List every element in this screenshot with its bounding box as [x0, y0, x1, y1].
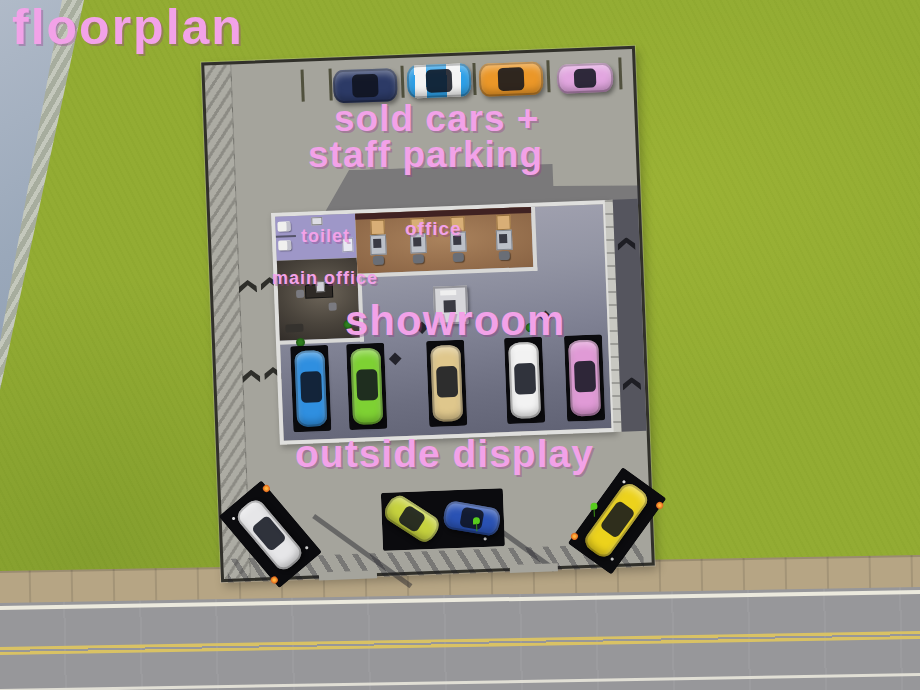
up-chevron-icon — [617, 237, 635, 251]
computer — [413, 237, 421, 246]
car-pink-coupe[interactable] — [568, 339, 601, 416]
parking-line — [301, 70, 305, 102]
display-pad — [564, 334, 605, 421]
car-lime-coupe[interactable] — [381, 492, 443, 546]
office-chair — [413, 254, 424, 263]
car-cabin — [599, 500, 635, 539]
car-cabin — [459, 507, 484, 530]
main-office-room — [277, 258, 364, 345]
display-pad — [290, 345, 331, 432]
sink[interactable] — [342, 238, 354, 252]
game-viewport: floorplan sold cars + staff parking toil… — [0, 0, 920, 690]
parking-line — [329, 69, 333, 101]
car-cabin — [250, 515, 287, 553]
route-marker-icon — [539, 311, 552, 324]
road — [0, 555, 920, 690]
cabinet — [370, 220, 385, 236]
potted-plant[interactable] — [525, 323, 534, 332]
car-cabin — [573, 360, 595, 393]
kiosk-counter — [440, 290, 456, 296]
dealership-building — [271, 200, 616, 445]
car-orange-sports[interactable] — [478, 61, 543, 96]
parking-line — [472, 63, 476, 95]
car-cabin — [426, 69, 452, 92]
car-tan-classic[interactable] — [430, 345, 463, 422]
display-pad — [504, 337, 545, 424]
computer[interactable] — [316, 281, 325, 292]
road-surface — [0, 587, 920, 690]
road-center-line — [0, 631, 920, 655]
cash-register-kiosk[interactable] — [433, 285, 468, 324]
office-chair[interactable] — [296, 290, 304, 298]
computer — [499, 234, 507, 243]
up-chevron-icon — [242, 369, 260, 383]
office-workstation[interactable] — [409, 218, 426, 265]
car-cabin — [498, 67, 524, 90]
car-cabin — [436, 365, 458, 398]
wall-dispenser — [311, 217, 322, 225]
cabinet — [450, 217, 465, 233]
car-white-roadster[interactable] — [508, 342, 541, 419]
cabinet — [410, 218, 425, 234]
sofa[interactable] — [285, 324, 303, 333]
office-chair — [499, 251, 510, 260]
car-green-sports[interactable] — [350, 348, 383, 425]
car-cabin — [397, 505, 426, 533]
car-cabin — [356, 369, 378, 402]
display-pad — [381, 488, 505, 551]
display-pad — [346, 343, 387, 430]
cabinet — [496, 215, 511, 231]
dealership-lot — [201, 46, 655, 582]
car-cabin — [352, 74, 378, 97]
parking-line — [618, 57, 622, 89]
toilet-fixture[interactable] — [277, 221, 290, 231]
office-workstation[interactable] — [369, 220, 386, 267]
route-marker-icon — [389, 352, 402, 365]
car-blue-coupe[interactable] — [442, 500, 502, 537]
parking-line — [400, 66, 404, 98]
office-workstation[interactable] — [495, 215, 512, 262]
computer — [373, 239, 381, 248]
up-chevron-icon — [623, 377, 641, 391]
office-room — [355, 207, 537, 278]
car-cabin — [513, 362, 535, 395]
stall-divider — [276, 235, 296, 238]
computer — [453, 236, 461, 245]
potted-plant[interactable] — [343, 320, 352, 329]
register-screen — [443, 300, 455, 312]
parking-line — [546, 60, 550, 92]
route-marker-icon — [416, 321, 429, 334]
office-chair[interactable] — [328, 303, 336, 311]
car-navy-coupe[interactable] — [333, 68, 398, 103]
car-cabin — [573, 68, 596, 89]
car-blue-convertible[interactable] — [406, 63, 471, 98]
office-workstation[interactable] — [449, 217, 466, 264]
display-pad — [426, 340, 467, 427]
car-cabin — [300, 371, 322, 404]
office-chair — [453, 253, 464, 262]
road-far-edge-line — [0, 673, 920, 690]
car-pink-compact[interactable] — [557, 63, 614, 94]
up-chevron-icon — [239, 280, 257, 294]
toilet-fixture[interactable] — [278, 240, 291, 250]
office-chair — [373, 256, 384, 265]
car-blue-roadster[interactable] — [294, 350, 327, 427]
